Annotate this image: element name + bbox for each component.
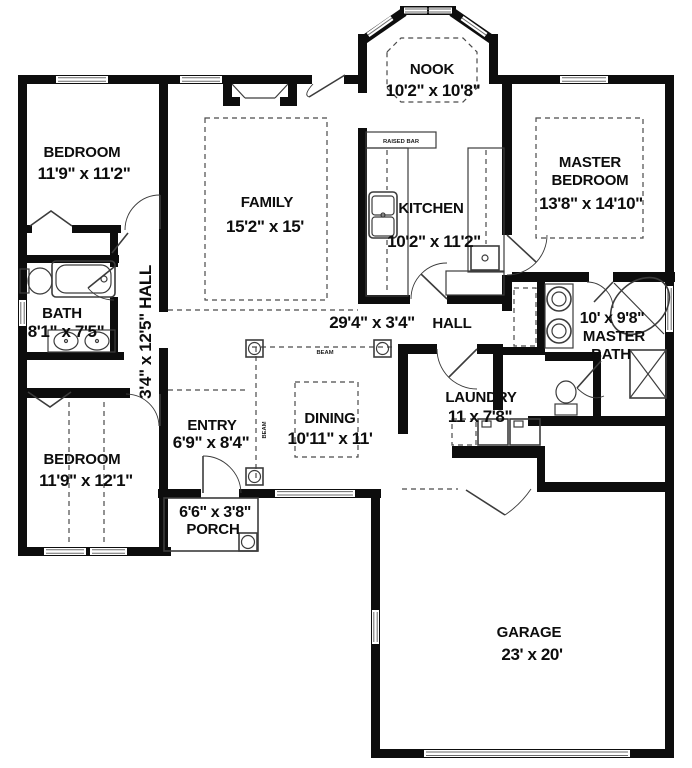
master-vanity	[545, 284, 573, 348]
room-name: BEDROOM	[552, 172, 629, 189]
room-name: MASTER	[583, 328, 646, 345]
room-name: HALL	[432, 315, 471, 332]
room-name: DINING	[304, 410, 355, 427]
fireplace	[223, 84, 297, 106]
room-label-garage: GARAGE 23' x 20'	[497, 624, 563, 664]
room-dims: 11'9" x 11'2"	[38, 164, 131, 183]
room-dims: 15'2" x 15'	[226, 217, 304, 236]
garage-door	[424, 750, 630, 757]
room-label-laundry: LAUNDRY 11 x 7'8"	[445, 389, 517, 426]
room-dims: 10'11" x 11'	[287, 429, 372, 448]
dashed-lines	[69, 38, 643, 543]
room-dims: 6'9" x 8'4"	[173, 433, 250, 452]
room-label-dining: DINING 10'11" x 11'	[287, 410, 372, 448]
hall-vertical-label: 3'4" x 12'5" HALL	[136, 265, 155, 399]
room-label-hall: 29'4" x 3'4" HALL	[329, 313, 471, 332]
column	[246, 468, 263, 485]
front-door	[201, 456, 241, 498]
room-label-bath: BATH 8'1" x 7'5"	[28, 305, 105, 341]
room-name: BEDROOM	[44, 451, 121, 468]
bathtub-icon	[52, 261, 115, 297]
garage-entry-door	[466, 489, 531, 515]
window	[372, 610, 379, 644]
toilet-icon	[555, 381, 577, 415]
linen-closet-dash	[514, 288, 536, 346]
room-dims: 10'2" x 10'8"	[386, 81, 481, 100]
bedroom1-door	[125, 195, 160, 230]
shower-icon	[630, 350, 666, 398]
room-name: BEDROOM	[44, 144, 121, 161]
room-dims: 10'2" x 11'2"	[387, 232, 481, 251]
room-name: PORCH	[186, 521, 239, 538]
walls	[18, 6, 675, 758]
room-label-master-bedroom: MASTER BEDROOM 13'8" x 14'10"	[539, 154, 643, 213]
room-name: BATH	[42, 305, 82, 322]
master-bath-door	[587, 282, 613, 308]
window	[90, 548, 127, 555]
room-label-bedroom2: BEDROOM 11'9" x 12'1"	[39, 451, 133, 490]
room-name: FAMILY	[241, 194, 294, 211]
raised-bar-label: RAISED BAR	[383, 139, 420, 145]
floor-plan-page: BEDROOM 11'9" x 11'2" FAMILY 15'2" x 15'…	[0, 0, 692, 768]
room-name: GARAGE	[497, 624, 562, 641]
beam-label-top: BEAM	[316, 350, 333, 356]
window	[180, 76, 222, 83]
room-label-kitchen: KITCHEN 10'2" x 11'2"	[387, 200, 481, 251]
room-dims: 10' x 9'8"	[580, 310, 645, 327]
room-label-entry: ENTRY 6'9" x 8'4"	[173, 417, 250, 452]
window	[560, 76, 608, 83]
room-dims: 11 x 7'8"	[448, 407, 512, 426]
column	[246, 340, 263, 357]
room-dims: 8'1" x 7'5"	[28, 322, 105, 341]
floor-plan-drawing: BEDROOM 11'9" x 11'2" FAMILY 15'2" x 15'…	[0, 0, 692, 768]
room-dims: 13'8" x 14'10"	[539, 194, 643, 213]
room-label-nook: NOOK 10'2" x 10'8"	[386, 61, 481, 100]
room-name: KITCHEN	[398, 200, 463, 217]
room-name: NOOK	[410, 61, 455, 78]
window	[44, 548, 86, 555]
kitchen-door	[411, 263, 447, 299]
patio-door	[307, 75, 345, 97]
room-label-hall-vertical: 3'4" x 12'5" HALL	[136, 265, 155, 399]
room-dims: 29'4" x 3'4"	[329, 313, 415, 332]
window	[275, 490, 355, 497]
room-dims: 6'6" x 3'8"	[179, 504, 251, 521]
room-dims: 23' x 20'	[501, 645, 563, 664]
column	[239, 533, 257, 551]
windows	[19, 8, 673, 758]
beam-label-left: BEAM	[262, 421, 268, 438]
laundry-door	[437, 349, 477, 389]
room-label-bedroom1: BEDROOM 11'9" x 11'2"	[38, 144, 131, 183]
room-dims: 11'9" x 12'1"	[39, 471, 133, 490]
column	[374, 340, 391, 357]
room-label-family: FAMILY 15'2" x 15'	[226, 194, 304, 236]
room-name: BATH	[591, 346, 631, 363]
room-name: LAUNDRY	[445, 389, 517, 406]
window	[19, 300, 26, 326]
room-name: ENTRY	[187, 417, 236, 434]
kitchen-counter-bottom	[446, 271, 504, 295]
room-name: MASTER	[559, 154, 622, 171]
window	[56, 76, 108, 83]
master-bedroom-door	[507, 235, 547, 275]
